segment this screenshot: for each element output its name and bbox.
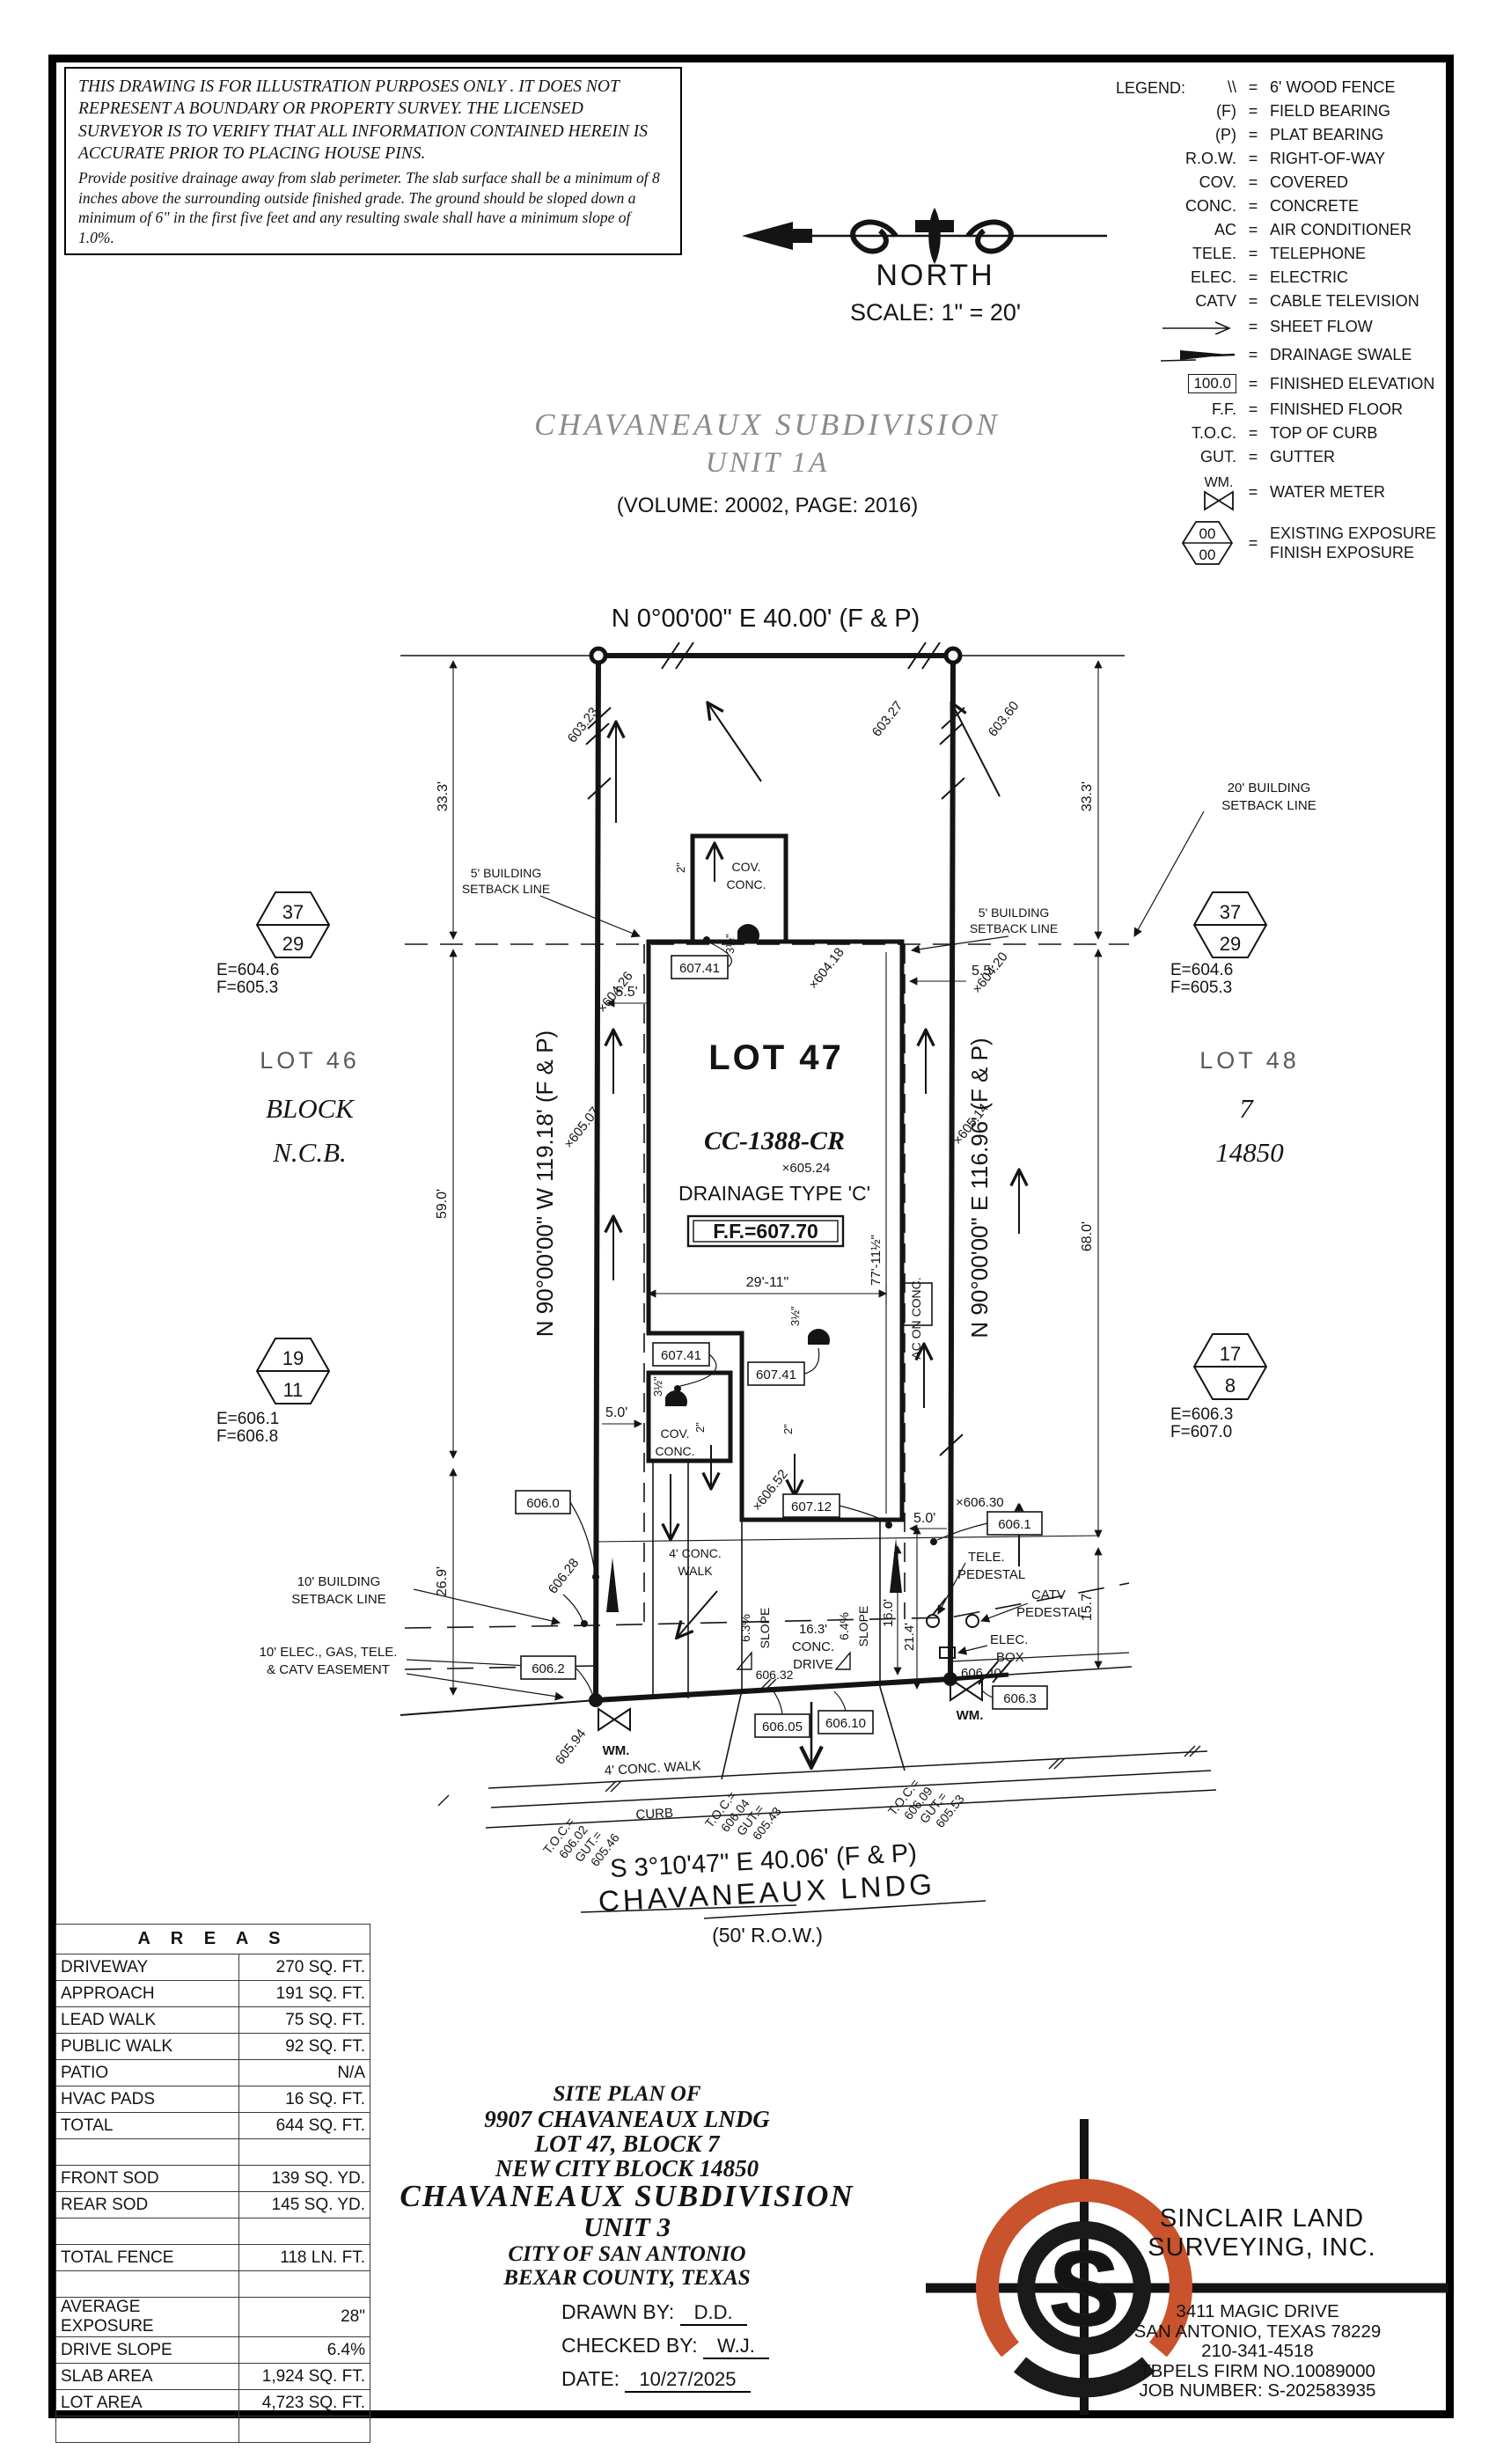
drainage-swale-arrows: [606, 1538, 902, 1612]
area-value: 28": [239, 2298, 370, 2337]
spot-elevation: 603.27: [869, 699, 906, 740]
area-label: REAR SOD: [56, 2192, 239, 2218]
easement-label: & CATV EASEMENT: [267, 1662, 390, 1677]
dim-77-11: 77'-11½": [869, 1235, 884, 1286]
elevation-e: E=604.6: [1170, 961, 1233, 979]
bearing-west: N 90°00'00" W 119.18' (F & P): [532, 1030, 558, 1337]
dim-16-0: 16.0': [881, 1599, 896, 1627]
area-value: 145 SQ. YD.: [239, 2192, 370, 2218]
exposure-finish: 8: [1225, 1375, 1236, 1397]
table-row: TOTAL644 SQ. FT.: [56, 2113, 370, 2139]
scale-label: SCALE: 1" = 20': [850, 299, 1021, 326]
table-row: SLAB AREA1,924 SQ. FT.: [56, 2364, 370, 2390]
checked-by-value: W.J.: [703, 2335, 769, 2359]
downspout-icon: [808, 1329, 830, 1345]
bearing-north: N 0°00'00" E 40.00' (F & P): [612, 605, 920, 633]
checked-by-label: CHECKED BY:: [561, 2334, 698, 2357]
lot-block: LOT 47, BLOCK 7: [378, 2131, 876, 2156]
table-row: AVERAGE EXPOSURE28": [56, 2298, 370, 2337]
dim-3-5in: 3½": [788, 1306, 802, 1326]
drive-slope-right: 6.4%: [837, 1612, 851, 1640]
city: CITY OF SAN ANTONIO: [378, 2242, 876, 2266]
setback-10-label: SETBACK LINE: [291, 1592, 386, 1607]
cov-conc-label: CONC.: [726, 877, 766, 891]
area-label: APPROACH: [56, 1981, 239, 2007]
elec-box-label: ELEC.: [990, 1632, 1028, 1647]
tele-pedestal-icon: [927, 1615, 939, 1627]
table-row: LEAD WALK75 SQ. FT.: [56, 2007, 370, 2034]
date-label: DATE:: [561, 2367, 620, 2390]
table-row: LOT AREA4,723 SQ. FT.: [56, 2390, 370, 2416]
firm-phone: 210-341-4518: [1103, 2342, 1412, 2362]
area-value: 92 SQ. FT.: [239, 2034, 370, 2060]
elevation-f: F=606.8: [216, 1427, 278, 1446]
dim-3-5in: 3½": [651, 1376, 664, 1397]
area-label: TOTAL FENCE: [56, 2245, 239, 2271]
drive-slope-left: SLOPE: [758, 1608, 772, 1649]
tele-pedestal-label: PEDESTAL: [957, 1567, 1025, 1582]
site-plan-page: THIS DRAWING IS FOR ILLUSTRATION PURPOSE…: [0, 0, 1496, 2464]
elevation-f: F=605.3: [216, 979, 278, 997]
finished-elevation-box: 607.12: [791, 1500, 832, 1514]
setback-5-left-label: SETBACK LINE: [462, 882, 550, 896]
spot-elevation: ×606.30: [956, 1495, 1004, 1510]
new-city-block: NEW CITY BLOCK 14850: [378, 2156, 876, 2181]
dim-3-5in: 3½": [723, 934, 737, 954]
conc-walk-label: 4' CONC. WALK: [604, 1758, 701, 1778]
catv-pedestal-label: PEDESTAL: [1016, 1605, 1084, 1620]
catv-pedestal-icon: [966, 1615, 979, 1627]
spot-elevation: 606.32: [756, 1668, 794, 1682]
area-value: 191 SQ. FT.: [239, 1981, 370, 2007]
site-address: 9907 CHAVANEAUX LNDG: [378, 2107, 876, 2131]
firm-street: 3411 MAGIC DRIVE: [1103, 2302, 1412, 2322]
lot-boundary: [400, 642, 1132, 1715]
finished-floor-elevation: F.F.=607.70: [713, 1220, 818, 1243]
dim-5-0-right: 5.0': [913, 1511, 935, 1526]
dim-21-4: 21.4': [902, 1623, 917, 1651]
water-meter-label: WM.: [957, 1708, 984, 1723]
north-label: NORTH: [876, 259, 994, 292]
ncb-number: 14850: [1215, 1137, 1284, 1168]
drawn-by-value: D.D.: [680, 2301, 747, 2326]
firm-address: 3411 MAGIC DRIVE SAN ANTONIO, TEXAS 7822…: [1103, 2302, 1412, 2402]
exposure-existing: 37: [1220, 901, 1241, 923]
areas-table-title: A R E A S: [56, 1925, 370, 1954]
areas-table: A R E A S DRIVEWAY270 SQ. FT. APPROACH19…: [55, 1924, 370, 2443]
title-block: SITE PLAN OF 9907 CHAVANEAUX LNDG LOT 47…: [378, 2082, 876, 2290]
spot-elevation: 605.94: [553, 1727, 590, 1768]
area-label: LOT AREA: [56, 2390, 239, 2416]
spot-elevation: ×604.18: [806, 945, 847, 993]
cov-conc-label: COV.: [732, 860, 761, 874]
slope-symbol: [836, 1653, 850, 1669]
plan-number: CC-1388-CR: [704, 1126, 845, 1155]
dim-29-11: 29'-11": [746, 1275, 788, 1290]
area-label: SLAB AREA: [56, 2364, 239, 2390]
dim-5-5-right: 5.5': [972, 964, 994, 979]
spot-elevation: 606.40: [961, 1666, 1001, 1681]
area-value: 6.4%: [239, 2337, 370, 2364]
area-value: 4,723 SQ. FT.: [239, 2390, 370, 2416]
exposure-existing: 37: [282, 901, 304, 923]
area-value: 270 SQ. FT.: [239, 1954, 370, 1981]
exposure-finish: 29: [282, 933, 304, 955]
area-value: [239, 2139, 370, 2166]
finished-elevation-box: 606.2: [532, 1661, 565, 1676]
table-row: HVAC PADS16 SQ. FT.: [56, 2086, 370, 2113]
area-value: 139 SQ. YD.: [239, 2166, 370, 2192]
table-row: PATION/A: [56, 2060, 370, 2086]
catv-pedestal-label: CATV: [1031, 1588, 1066, 1602]
conc-walk-label: 4' CONC.: [669, 1546, 721, 1560]
table-row: [56, 2416, 370, 2443]
area-label: PUBLIC WALK: [56, 2034, 239, 2060]
table-row: APPROACH191 SQ. FT.: [56, 1981, 370, 2007]
water-meter-label: WM.: [603, 1743, 630, 1758]
area-label: LEAD WALK: [56, 2007, 239, 2034]
dim-26-9: 26.9': [435, 1566, 450, 1596]
lot-48-label: LOT 48: [1199, 1047, 1300, 1074]
area-value: 16 SQ. FT.: [239, 2086, 370, 2113]
area-value: 75 SQ. FT.: [239, 2007, 370, 2034]
easement-label: 10' ELEC., GAS, TELE.: [260, 1645, 398, 1660]
dim-2in: 2": [674, 862, 687, 873]
dim-59-0: 59.0': [435, 1189, 450, 1219]
subdivision-unit: UNIT 3: [378, 2212, 876, 2242]
date-value: 10/27/2025: [625, 2368, 750, 2393]
table-row: [56, 2218, 370, 2245]
area-label: [56, 2218, 239, 2245]
exposure-existing: 19: [282, 1347, 304, 1369]
dim-2in: 2": [693, 1422, 707, 1433]
elevation-e: E=606.3: [1170, 1405, 1233, 1424]
date-row: DATE: 10/27/2025: [561, 2367, 878, 2393]
area-label: [56, 2271, 239, 2298]
table-row: DRIVE SLOPE6.4%: [56, 2337, 370, 2364]
checked-by-row: CHECKED BY: W.J.: [561, 2334, 878, 2359]
cov-conc-label: COV.: [661, 1426, 690, 1441]
conc-drive-label: 16.3': [799, 1622, 827, 1637]
dim-5-5-left: 5.5': [615, 985, 637, 1000]
firm-name: SINCLAIR LAND SURVEYING, INC.: [1126, 2204, 1398, 2262]
water-meter-icon: [950, 1679, 982, 1700]
setback-20-label: SETBACK LINE: [1221, 798, 1316, 813]
area-label: DRIVE SLOPE: [56, 2337, 239, 2364]
area-value: [239, 2271, 370, 2298]
adjacent-subdivision-title: CHAVANEAUX SUBDIVISION: [534, 407, 1001, 442]
cov-conc-label: CONC.: [655, 1444, 694, 1458]
finished-elevation-box: 606.1: [998, 1517, 1031, 1532]
bearing-east: N 90°00'00" E 116.96' (F & P): [966, 1038, 993, 1338]
tele-pedestal-label: TELE.: [968, 1550, 1005, 1565]
adjacent-subdivision-unit: UNIT 1A: [706, 447, 830, 479]
firm-registration: TBPELS FIRM NO.10089000: [1103, 2362, 1412, 2382]
area-value: [239, 2416, 370, 2443]
exposure-existing: 17: [1220, 1343, 1241, 1365]
block-number: 7: [1239, 1093, 1254, 1124]
area-label: FRONT SOD: [56, 2166, 239, 2192]
conc-drive-label: CONC.: [792, 1639, 834, 1654]
area-value: 1,924 SQ. FT.: [239, 2364, 370, 2390]
table-row: TOTAL FENCE118 LN. FT.: [56, 2245, 370, 2271]
area-value: [239, 2218, 370, 2245]
lot-46-label: LOT 46: [260, 1047, 360, 1074]
dim-33-3-left: 33.3': [436, 781, 451, 811]
water-meter-icon: [598, 1709, 630, 1730]
table-row: [56, 2271, 370, 2298]
area-label: AVERAGE EXPOSURE: [56, 2298, 239, 2337]
finished-elevation-box: 607.41: [679, 961, 720, 976]
north-arrow: [742, 208, 1107, 264]
ncb-word: N.C.B.: [272, 1137, 347, 1168]
drive-slope-right: SLOPE: [856, 1606, 870, 1647]
conc-walk-label: WALK: [678, 1564, 713, 1578]
setback-5-right-label: 5' BUILDING: [979, 906, 1049, 920]
finished-elevation-box: 607.41: [756, 1368, 796, 1382]
drive-slope-left: 6.3%: [738, 1614, 752, 1642]
finished-elevation-box: 607.41: [661, 1348, 701, 1363]
leader-lines: [407, 811, 1204, 1714]
area-label: DRIVEWAY: [56, 1954, 239, 1981]
spot-elevation: 603.60: [986, 699, 1023, 740]
area-label: [56, 2139, 239, 2166]
slope-symbol: [737, 1653, 752, 1669]
area-label: [56, 2416, 239, 2443]
area-label: PATIO: [56, 2060, 239, 2086]
area-label: TOTAL: [56, 2113, 239, 2139]
elevation-e: E=604.6: [216, 961, 279, 979]
lot-47-label: LOT 47: [708, 1038, 844, 1077]
firm-name-line: SINCLAIR LAND: [1126, 2204, 1398, 2233]
elec-box-label: BOX: [996, 1650, 1024, 1665]
drainage-type: DRAINAGE TYPE 'C': [678, 1182, 870, 1205]
job-number: JOB NUMBER: S-202583935: [1103, 2381, 1412, 2402]
dim-33-3-right: 33.3': [1080, 781, 1095, 811]
setback-5-left-label: 5' BUILDING: [471, 866, 541, 880]
block-word: BLOCK: [266, 1093, 356, 1124]
dim-68-0: 68.0': [1080, 1221, 1095, 1251]
firm-name-line: SURVEYING, INC.: [1126, 2233, 1398, 2262]
dim-2in: 2": [781, 1424, 795, 1434]
setback-10-label: 10' BUILDING: [297, 1574, 381, 1589]
title-line: SITE PLAN OF: [378, 2082, 876, 2107]
area-value: N/A: [239, 2060, 370, 2086]
table-row: DRIVEWAY270 SQ. FT.: [56, 1954, 370, 1981]
finished-elevation-box: 606.3: [1003, 1691, 1037, 1706]
setback-20-label: 20' BUILDING: [1228, 781, 1311, 796]
area-value: 644 SQ. FT.: [239, 2113, 370, 2139]
drawn-by-label: DRAWN BY:: [561, 2300, 674, 2323]
table-row: FRONT SOD139 SQ. YD.: [56, 2166, 370, 2192]
dim-5-0-left: 5.0': [605, 1405, 627, 1420]
spot-elevation: 606.28: [546, 1556, 583, 1597]
ac-on-conc-label: AC ON CONC.: [909, 1277, 923, 1359]
elevation-f: F=605.3: [1170, 979, 1232, 997]
area-label: HVAC PADS: [56, 2086, 239, 2113]
county-state: BEXAR COUNTY, TEXAS: [378, 2266, 876, 2290]
table-row: [56, 2139, 370, 2166]
conc-drive-label: DRIVE: [793, 1657, 833, 1672]
drawing-credits: DRAWN BY: D.D. CHECKED BY: W.J. DATE: 10…: [561, 2300, 878, 2401]
finished-elevation-box: 606.05: [762, 1720, 803, 1734]
finished-elevation-box: 606.10: [825, 1716, 866, 1731]
table-row: PUBLIC WALK92 SQ. FT.: [56, 2034, 370, 2060]
firm-city: SAN ANTONIO, TEXAS 78229: [1103, 2322, 1412, 2343]
subdivision-name: CHAVANEAUX SUBDIVISION: [378, 2181, 876, 2212]
exposure-finish: 29: [1220, 933, 1241, 955]
finished-elevation-box: 606.0: [526, 1496, 560, 1511]
street-row-width: (50' R.O.W.): [712, 1924, 823, 1947]
table-row: REAR SOD145 SQ. YD.: [56, 2192, 370, 2218]
exposure-finish: 11: [283, 1379, 304, 1401]
elevation-e: E=606.1: [216, 1410, 279, 1428]
setback-5-right-label: SETBACK LINE: [970, 921, 1058, 935]
area-value: 118 LN. FT.: [239, 2245, 370, 2271]
curb-label: CURB: [635, 1806, 673, 1822]
elevation-f: F=607.0: [1170, 1423, 1232, 1441]
spot-elevation: ×605.24: [782, 1161, 831, 1176]
plat-volume-page: (VOLUME: 20002, PAGE: 2016): [617, 494, 918, 517]
drawn-by-row: DRAWN BY: D.D.: [561, 2300, 878, 2326]
